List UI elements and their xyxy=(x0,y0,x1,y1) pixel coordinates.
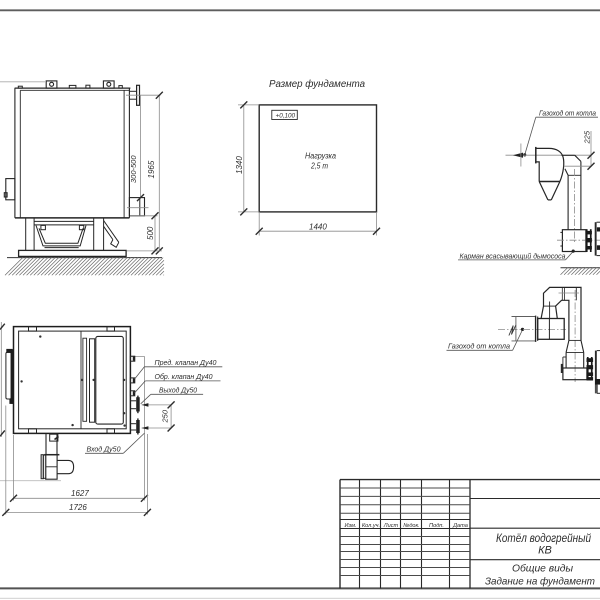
svg-text:1726: 1726 xyxy=(69,503,87,512)
svg-text:КВ: КВ xyxy=(538,545,552,557)
svg-text:Котёл водогрейный: Котёл водогрейный xyxy=(496,533,592,545)
svg-text:1965: 1965 xyxy=(147,160,156,178)
svg-text:Подп.: Подп. xyxy=(429,523,444,529)
svg-text:Пред. клапан Ду40: Пред. клапан Ду40 xyxy=(155,359,217,367)
svg-text:1340: 1340 xyxy=(235,156,244,174)
svg-text:Дата: Дата xyxy=(452,523,468,529)
svg-text:300-500: 300-500 xyxy=(129,155,138,183)
svg-text:2,5 т: 2,5 т xyxy=(310,162,328,171)
svg-text:Задание на фундамент: Задание на фундамент xyxy=(485,576,595,588)
svg-text:Размер фундамента: Размер фундамента xyxy=(269,78,365,90)
svg-text:Общие виды: Общие виды xyxy=(512,563,573,575)
svg-text:№док.: №док. xyxy=(403,523,419,529)
svg-text:Вход Ду50: Вход Ду50 xyxy=(87,446,121,454)
svg-text:250: 250 xyxy=(160,409,169,423)
svg-text:500: 500 xyxy=(146,226,155,240)
svg-text:+0,100: +0,100 xyxy=(276,112,296,119)
svg-text:Газоход от котла: Газоход от котла xyxy=(539,109,596,117)
svg-text:1440: 1440 xyxy=(309,222,327,231)
svg-text:1627: 1627 xyxy=(71,489,89,498)
svg-text:Нагрузка: Нагрузка xyxy=(305,152,336,161)
svg-text:Карман всасывающий дымососа: Карман всасывающий дымососа xyxy=(460,252,566,260)
svg-text:Кол.уч.: Кол.уч. xyxy=(362,523,380,529)
svg-text:Лист: Лист xyxy=(383,523,399,529)
svg-text:Обр. клапан Ду40: Обр. клапан Ду40 xyxy=(155,373,213,381)
svg-text:225: 225 xyxy=(583,130,592,144)
svg-text:Выход Ду50: Выход Ду50 xyxy=(159,386,197,394)
svg-text:Изм.: Изм. xyxy=(345,523,357,529)
svg-text:Газоход от котла: Газоход от котла xyxy=(448,343,510,351)
